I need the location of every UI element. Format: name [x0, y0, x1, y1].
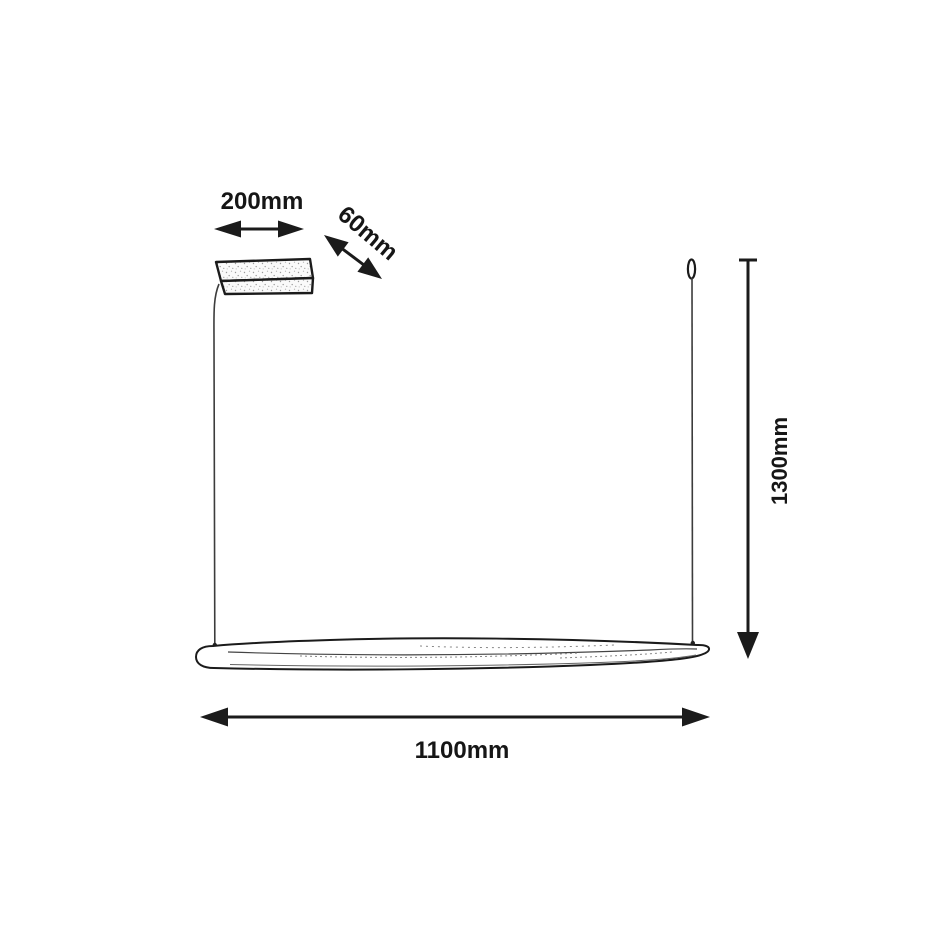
dim-canopy-depth: 60mm: [324, 201, 403, 279]
arrowhead-down-icon: [737, 632, 759, 659]
left-suspension-wire: [213, 284, 219, 647]
left-wire-line: [214, 284, 219, 643]
right-wire-loop: [688, 260, 695, 279]
dim-fixture-length: 1100mm: [200, 708, 710, 765]
arrowhead-lower-right-icon: [357, 257, 382, 279]
arrowhead-right-icon: [682, 708, 710, 727]
fixture-length-label: 1100mm: [415, 737, 510, 764]
dimension-diagram-page: 200mm 60mm 1300mm 1100mm: [0, 0, 950, 950]
arrowhead-left-icon: [200, 708, 228, 727]
canopy-depth-label: 60mm: [332, 201, 402, 266]
canopy-width-label: 200mm: [221, 188, 304, 215]
pendant-light-dimension-drawing: 200mm 60mm 1300mm 1100mm: [0, 0, 950, 950]
arrowhead-left-icon: [214, 221, 241, 238]
dim-suspension-height: 1300mm: [737, 260, 792, 659]
arrowhead-right-icon: [278, 221, 304, 238]
right-wire-line: [692, 278, 693, 641]
canopy-depth-arrow-line: [341, 248, 365, 266]
arrowhead-upper-left-icon: [324, 235, 349, 257]
ceiling-canopy: [216, 259, 313, 294]
right-suspension-wire: [688, 260, 695, 646]
dim-canopy-width: 200mm: [214, 188, 304, 238]
suspension-height-label: 1300mm: [767, 417, 792, 505]
canopy-front-face: [221, 278, 313, 294]
lamp-body: [196, 638, 709, 669]
